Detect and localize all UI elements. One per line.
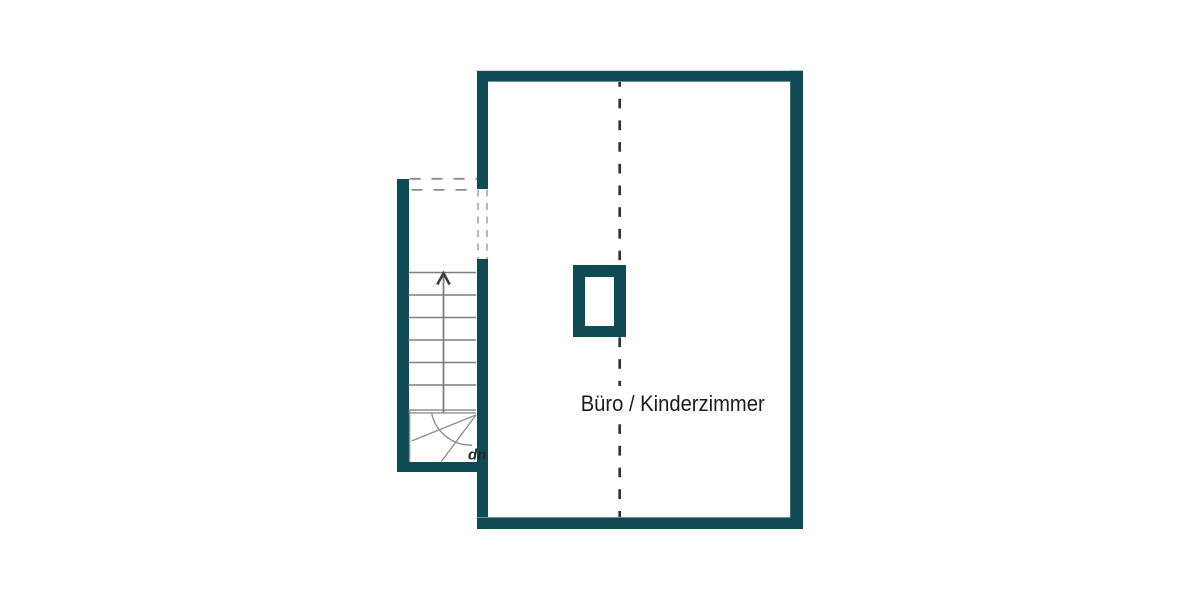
- svg-text:dn: dn: [468, 447, 486, 464]
- svg-text:Büro / Kinderzimmer: Büro / Kinderzimmer: [581, 391, 765, 416]
